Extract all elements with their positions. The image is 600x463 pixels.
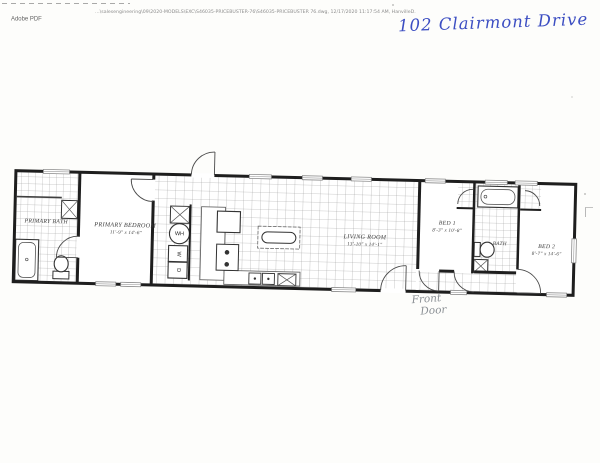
vanity-sink-icon	[61, 200, 77, 218]
bathtub-icon	[478, 186, 519, 208]
front-door-leaf	[406, 266, 407, 291]
kitchen-island	[258, 226, 301, 249]
refrigerator-icon	[217, 211, 241, 233]
handwritten-front-door-note: Front Door	[411, 292, 447, 318]
room-dims-bed1: 8'-3" x 10'-8"	[432, 228, 462, 234]
bedroom-door-leaf	[131, 179, 153, 180]
wall	[457, 207, 474, 209]
toilet-icon	[474, 242, 494, 257]
room-dims-bed2: 8'-7" x 14'-6"	[532, 251, 562, 257]
front-door-note-line2: Door	[420, 304, 447, 318]
rear-door-leaf	[214, 152, 215, 175]
print-file-path: …\salesengineering\09\2020-MODELS\EXC\S4…	[95, 9, 416, 14]
toilet-icon	[53, 256, 70, 279]
scan-speck	[392, 4, 394, 6]
rear-door-arc	[191, 151, 215, 175]
floor-plan: PRIMARY BATH PRIMARY BEDROOM 11'-9" x 14…	[12, 169, 578, 297]
dishwasher-icon	[278, 274, 296, 286]
room-label-bath: BATH	[493, 241, 507, 247]
cabinet-icon	[170, 206, 189, 223]
room-label-bed2: BED 2	[538, 244, 555, 250]
room-label-primary-bedroom: PRIMARY BEDROOM	[94, 221, 156, 230]
room-label-primary-bath: PRIMARY BATH	[24, 218, 68, 225]
washer-label: W	[175, 251, 181, 256]
scan-speck	[584, 193, 586, 195]
scan-artifact-dashes	[2, 3, 130, 4]
bath-door-leaf	[56, 257, 77, 258]
rear-door-opening	[191, 173, 214, 178]
scanned-floorplan-page: …\salesengineering\09\2020-MODELS\EXC\S4…	[0, 0, 600, 463]
handwritten-address: 102 Clairmont Drive	[398, 10, 589, 36]
range-icon	[216, 244, 239, 271]
dryer-label: D	[175, 268, 181, 272]
room-dims-primary-bedroom: 11'-9" x 14'-6"	[110, 230, 142, 236]
wall	[76, 258, 80, 283]
room-label-bed1: BED 1	[439, 221, 456, 227]
printer-label: Adobe PDF	[11, 16, 42, 22]
scan-speck	[571, 96, 573, 98]
closet-left-tile	[458, 183, 474, 207]
closet-right-tile	[521, 185, 542, 209]
wall	[439, 270, 454, 273]
shower-icon	[15, 239, 39, 281]
floor-plan-drawing	[12, 169, 578, 297]
water-heater-label: WH	[175, 231, 184, 237]
room-label-living-room: LIVING ROOM	[344, 233, 387, 241]
front-door-opening	[381, 288, 406, 293]
scan-artifact-mark	[585, 207, 593, 217]
bed2-door-leaf	[517, 293, 540, 294]
room-dims-living-room: 13'-10" x 14'-1"	[347, 242, 382, 248]
